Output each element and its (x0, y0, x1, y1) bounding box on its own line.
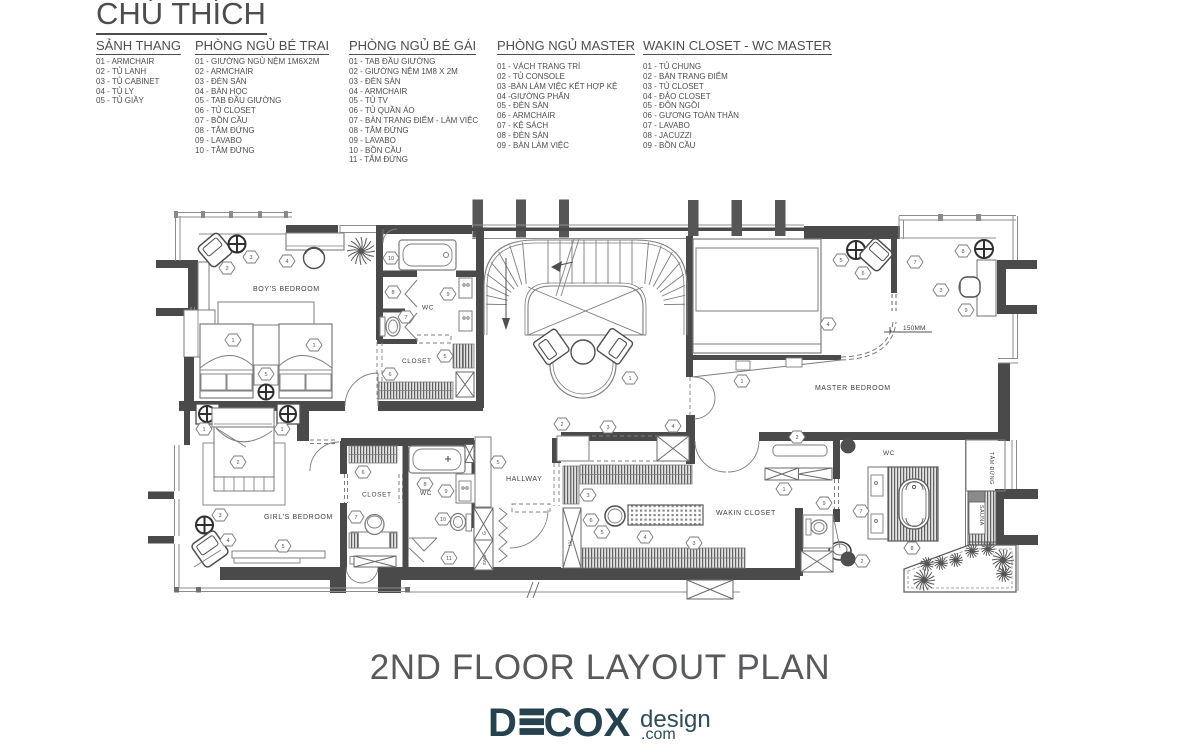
svg-text:2: 2 (225, 266, 228, 272)
svg-text:5: 5 (839, 258, 842, 264)
svg-text:7: 7 (404, 315, 407, 321)
svg-text:8: 8 (961, 249, 964, 255)
svg-text:5: 5 (281, 544, 284, 550)
svg-text:SWG: SWG (482, 554, 487, 565)
svg-text:BOY'S BEDROOM: BOY'S BEDROOM (253, 286, 320, 293)
svg-text:1: 1 (740, 379, 743, 385)
svg-text:11: 11 (446, 556, 452, 562)
svg-text:1: 1 (231, 338, 234, 344)
svg-text:3: 3 (606, 425, 609, 431)
svg-text:2: 2 (560, 422, 563, 428)
svg-text:WC: WC (422, 305, 434, 312)
svg-text:1: 1 (312, 343, 315, 349)
svg-text:7: 7 (859, 509, 862, 515)
svg-text:1: 1 (782, 487, 785, 493)
svg-text:6: 6 (361, 470, 364, 476)
svg-text:.com: .com (641, 726, 676, 743)
svg-text:CLOSET: CLOSET (402, 358, 432, 365)
svg-text:7: 7 (354, 515, 357, 521)
svg-text:5: 5 (264, 372, 267, 378)
svg-text:WAKIN CLOSET: WAKIN CLOSET (716, 510, 776, 517)
svg-text:150MM: 150MM (903, 325, 926, 332)
svg-text:HALLWAY: HALLWAY (506, 476, 542, 483)
svg-text:CLOSET: CLOSET (362, 492, 392, 499)
svg-text:G: G (482, 531, 488, 535)
svg-text:10: 10 (440, 517, 446, 523)
svg-text:3: 3 (249, 255, 252, 261)
svg-text:3: 3 (692, 541, 695, 547)
svg-text:DECOX: DECOX (488, 701, 631, 745)
svg-text:4: 4 (285, 259, 288, 265)
svg-text:9: 9 (444, 489, 447, 495)
svg-text:4: 4 (826, 322, 829, 328)
svg-text:3: 3 (939, 288, 942, 294)
svg-text:MASTER BEDROOM: MASTER BEDROOM (815, 385, 891, 392)
svg-text:2: 2 (236, 460, 239, 466)
svg-text:5: 5 (600, 530, 603, 536)
svg-text:3: 3 (218, 513, 221, 519)
svg-text:2: 2 (860, 559, 863, 565)
svg-text:TẮM ĐỨNG: TẮM ĐỨNG (988, 452, 996, 485)
svg-text:3: 3 (586, 493, 589, 499)
svg-text:WC: WC (883, 450, 895, 457)
svg-text:4: 4 (671, 424, 674, 430)
svg-text:10: 10 (388, 256, 394, 262)
svg-text:4: 4 (643, 535, 646, 541)
svg-text:1: 1 (628, 376, 631, 382)
svg-text:1: 1 (202, 427, 205, 433)
svg-text:9: 9 (964, 308, 967, 314)
svg-text:6: 6 (861, 271, 864, 277)
svg-text:6: 6 (589, 518, 592, 524)
svg-text:4: 4 (226, 538, 229, 544)
svg-text:8: 8 (423, 482, 426, 488)
svg-text:1: 1 (280, 427, 283, 433)
svg-text:7: 7 (913, 260, 916, 266)
svg-text:WC: WC (420, 490, 432, 497)
svg-text:5: 5 (496, 460, 499, 466)
svg-text:LV: LV (568, 539, 574, 545)
svg-text:9: 9 (446, 292, 449, 298)
svg-text:2: 2 (795, 435, 798, 441)
svg-text:8: 8 (391, 290, 394, 296)
svg-text:GIRL'S BEDROOM: GIRL'S BEDROOM (264, 514, 333, 521)
svg-text:SAUNA: SAUNA (978, 505, 984, 526)
svg-text:5: 5 (443, 354, 446, 360)
svg-text:9: 9 (822, 501, 825, 507)
svg-text:6: 6 (388, 372, 391, 378)
svg-text:8: 8 (910, 546, 913, 552)
